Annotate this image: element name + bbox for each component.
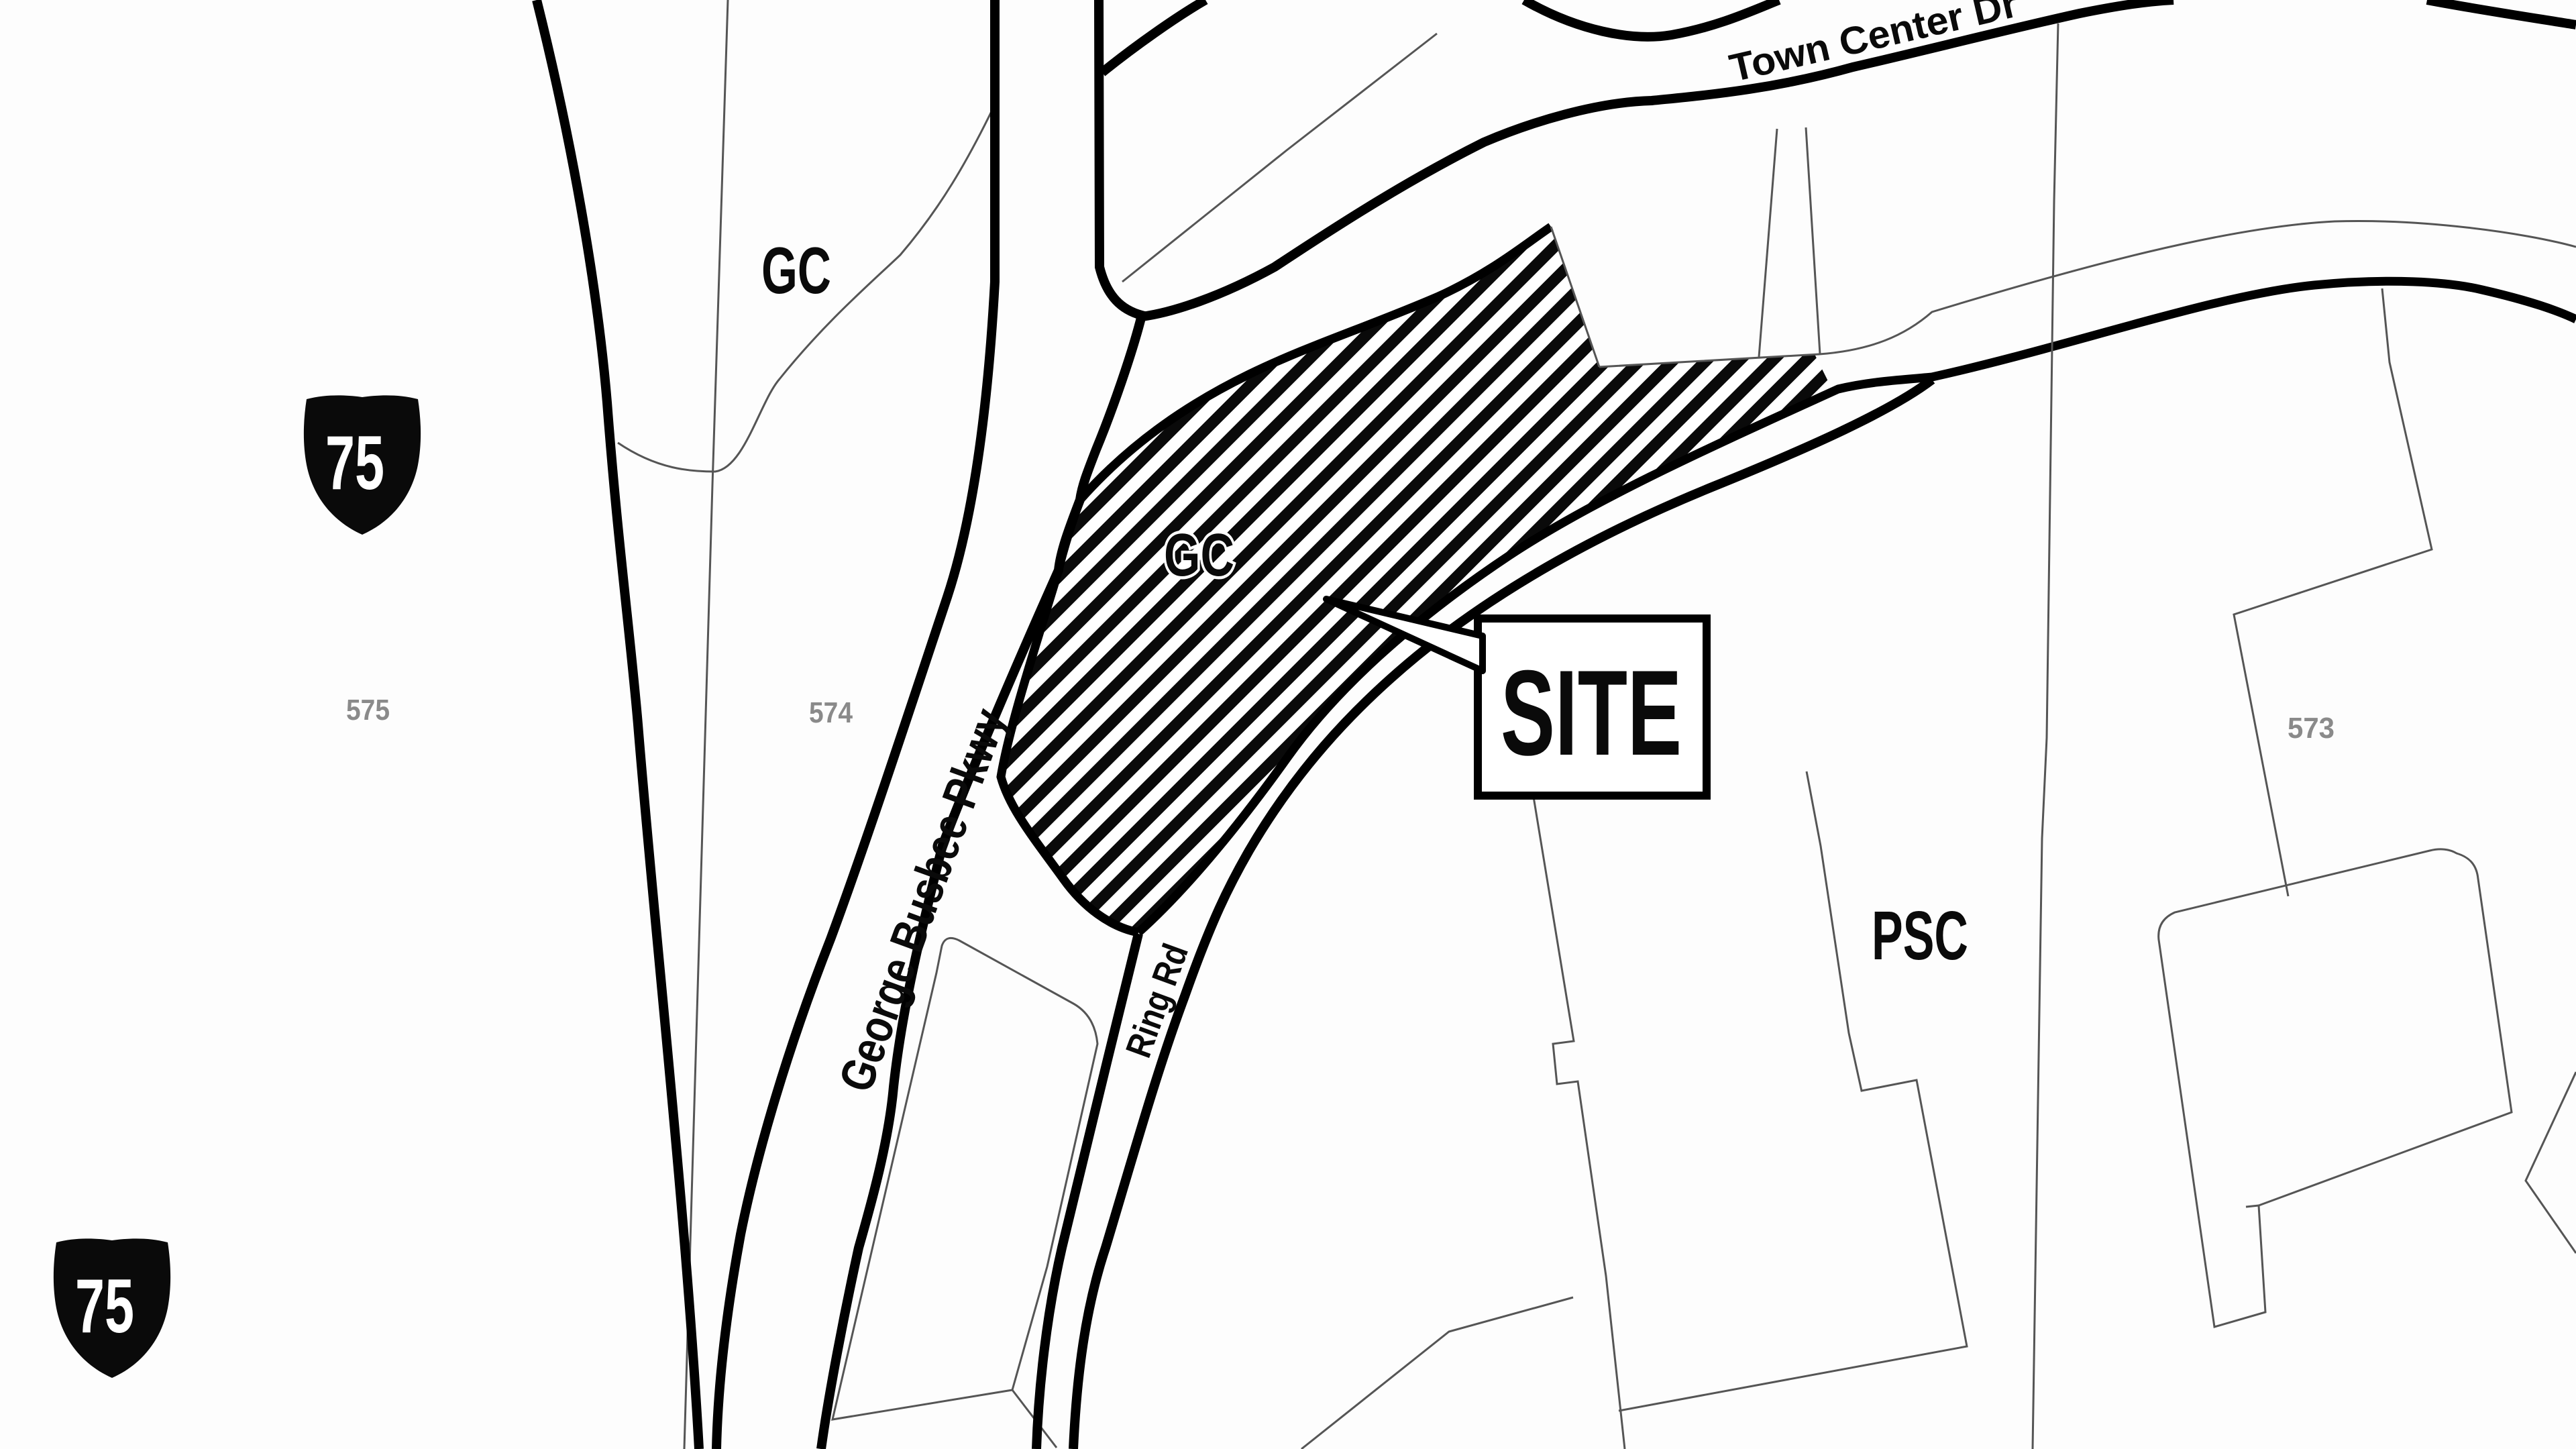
svg-text:574: 574 xyxy=(809,696,853,729)
svg-text:575: 575 xyxy=(346,694,390,727)
svg-text:573: 573 xyxy=(2288,712,2334,745)
svg-text:GC: GC xyxy=(761,233,831,307)
svg-text:PSC: PSC xyxy=(1872,897,1968,974)
svg-text:GC: GC xyxy=(1164,522,1234,589)
svg-text:75: 75 xyxy=(75,1264,134,1349)
svg-text:75: 75 xyxy=(325,421,384,506)
svg-text:SITE: SITE xyxy=(1501,645,1682,781)
